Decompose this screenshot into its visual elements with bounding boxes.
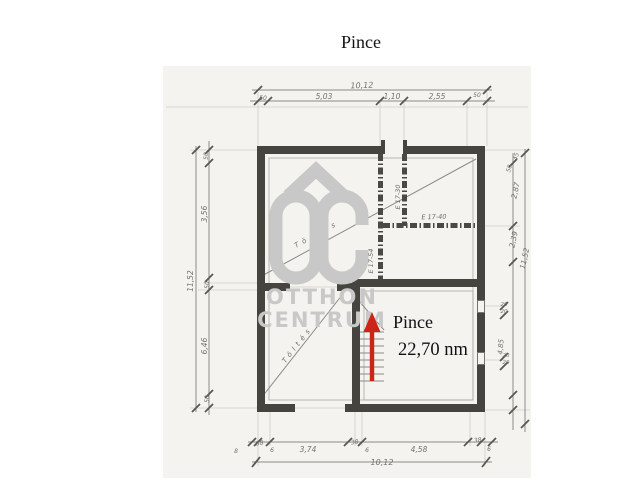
dim-top-s4: 2,55 [429,92,446,101]
dim-top-s3: 1,10 [384,92,401,101]
partition-label-mid: E 17-40 [421,213,446,222]
dim-left-s5: 50 [204,395,211,403]
dim-left-s1: 50 [203,152,210,160]
dim-top-s2: 5,03 [316,92,333,101]
dim-bottom-s7: 38 [474,436,483,444]
dim-bottom-s2: 6 [270,447,274,454]
dim-bottom-s3: 3,74 [300,445,317,454]
dim-left-s2: 3,56 [200,205,209,222]
page: { "page": { "title": "Pince" }, "waterma… [0,0,636,500]
dim-bottom-s8: 6 [487,446,491,453]
dim-window-1: 20 [501,302,508,308]
dim-bottom-lead: 8 [234,448,238,455]
dim-left-s3: 50 [204,281,211,289]
room-name: Pince [393,312,433,332]
dim-bottom-s6: 4,58 [411,445,428,454]
dim-top-s1: 50 [259,95,267,102]
dim-left-overall: 11,52 [186,270,195,292]
dim-window-4: 20 [503,360,510,366]
dim-top-s5: 50 [473,92,481,99]
partition-label-right: E 17-30 [394,184,402,209]
dim-window-3: 20 [503,353,510,359]
watermark-line1: OTTHON [266,285,378,309]
dim-bottom-s1: 38 [256,439,265,447]
dim-bottom-s4: 38 [351,438,360,446]
dim-bottom-s5: 6 [365,447,369,454]
dim-top-overall: 10,12 [350,81,373,91]
window-lower [478,353,485,365]
floor-plan: Töltés Töltés E 17-54 E 17-30 E 17-40 [0,0,636,500]
window-upper [478,301,485,313]
dim-bottom-overall: 10,12 [371,458,394,467]
dim-left-s4: 6,46 [200,337,209,354]
dim-window-2: 20 [501,309,508,315]
room-area: 22,70 nm [398,340,469,360]
